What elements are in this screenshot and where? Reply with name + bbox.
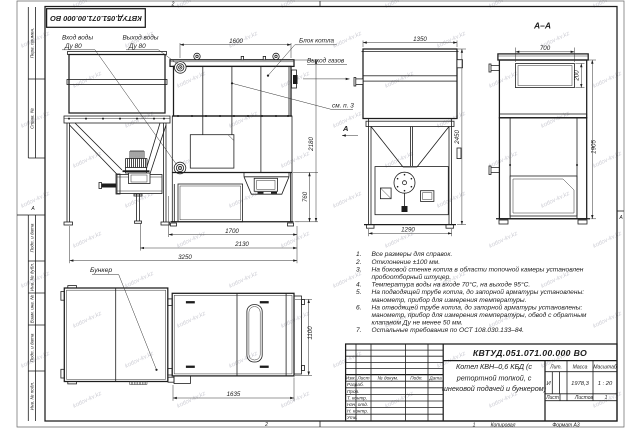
svg-text:Все размеры для справок.: Все размеры для справок. bbox=[372, 250, 453, 258]
svg-text:Выход газов: Выход газов bbox=[307, 57, 345, 65]
svg-text:Ду 80: Ду 80 bbox=[64, 43, 82, 50]
svg-text:Блок котла: Блок котла bbox=[299, 38, 334, 45]
svg-text:Лист: Лист bbox=[545, 395, 559, 401]
svg-text:1290: 1290 bbox=[401, 227, 415, 234]
svg-text:Нач. отд.: Нач. отд. bbox=[347, 402, 368, 407]
svg-text:Подп. и дата: Подп. и дата bbox=[30, 333, 35, 362]
svg-text:Ду 80: Ду 80 bbox=[128, 43, 146, 50]
svg-text:Лист: Лист bbox=[356, 376, 369, 381]
svg-text:2: 2 bbox=[264, 422, 268, 428]
svg-text:2130: 2130 bbox=[234, 241, 249, 248]
svg-text:На подводящей трубе котла, до: На подводящей трубе котла, до запорной а… bbox=[372, 288, 585, 296]
svg-text:На отводящей трубе котла, до з: На отводящей трубе котла, до запорной ар… bbox=[372, 304, 583, 312]
svg-text:Перв. примен.: Перв. примен. bbox=[30, 28, 35, 59]
svg-text:Взам. инв. №: Взам. инв. № bbox=[30, 295, 35, 323]
svg-text:1100: 1100 bbox=[307, 326, 314, 340]
svg-text:Вход воды: Вход воды bbox=[62, 34, 93, 42]
svg-text:1978,3: 1978,3 bbox=[571, 381, 590, 387]
svg-text:3250: 3250 bbox=[178, 254, 192, 261]
svg-text:манометр, прибор для измерения: манометр, прибор для измерения температу… bbox=[372, 296, 527, 304]
svg-text:манометр, прибор для измерения: манометр, прибор для измерения температу… bbox=[372, 311, 587, 319]
svg-text:Изм.: Изм. bbox=[346, 376, 356, 381]
svg-text:Масса: Масса bbox=[573, 365, 588, 371]
svg-text:№ докум.: № докум. bbox=[378, 376, 399, 381]
svg-text:2180: 2180 bbox=[308, 137, 315, 152]
svg-text:5.: 5. bbox=[356, 289, 362, 296]
svg-text:см. п. 3: см. п. 3 bbox=[332, 103, 354, 110]
svg-text:Остальные требования по ОСТ 10: Остальные требования по ОСТ 108.030.133–… bbox=[372, 326, 525, 334]
svg-text:7.: 7. bbox=[356, 327, 362, 334]
svg-text:Н. контр.: Н. контр. bbox=[347, 409, 368, 414]
svg-text:1600: 1600 bbox=[229, 38, 243, 45]
svg-text:клапаном Ду не менее 50 мм.: клапаном Ду не менее 50 мм. bbox=[372, 319, 464, 326]
svg-text:пробоотборный штуцер.: пробоотборный штуцер. bbox=[372, 273, 452, 281]
svg-text:Дата: Дата bbox=[428, 376, 442, 381]
svg-text:2.: 2. bbox=[355, 259, 362, 266]
svg-text:Т. контр.: Т. контр. bbox=[347, 395, 367, 400]
svg-text:2450: 2450 bbox=[454, 130, 461, 145]
svg-text:Подп. и дата: Подп. и дата bbox=[30, 223, 35, 252]
svg-text:КВТУД.051.071.00.000 ВО: КВТУД.051.071.00.000 ВО bbox=[50, 14, 142, 23]
svg-text:4.: 4. bbox=[356, 282, 362, 289]
svg-text:Котел КВН–0,6 КБД (с: Котел КВН–0,6 КБД (с bbox=[456, 362, 532, 371]
svg-text:Инв. № дубл.: Инв. № дубл. bbox=[30, 263, 35, 291]
svg-text:1350: 1350 bbox=[413, 36, 427, 43]
svg-text:Бункер: Бункер bbox=[90, 267, 112, 274]
svg-text:760: 760 bbox=[302, 191, 309, 202]
svg-text:1.: 1. bbox=[356, 251, 362, 258]
svg-text:ретортной топкой, с: ретортной топкой, с bbox=[456, 373, 532, 382]
svg-text:1635: 1635 bbox=[227, 391, 241, 398]
svg-text:Лит.: Лит. bbox=[549, 365, 562, 371]
svg-text:700: 700 bbox=[540, 45, 551, 52]
svg-text:шнековой подачей и бункером): шнековой подачей и бункером) bbox=[442, 384, 546, 393]
svg-text:А: А bbox=[618, 215, 623, 221]
svg-text:На боковой стенке котла в обла: На боковой стенке котла в области топочн… bbox=[372, 266, 584, 274]
svg-text:А: А bbox=[342, 124, 348, 133]
svg-text:1700: 1700 bbox=[225, 228, 239, 235]
svg-text:Температура воды на входе 70°С: Температура воды на входе 70°С, на выход… bbox=[372, 281, 531, 289]
svg-text:1: 1 bbox=[605, 395, 608, 401]
svg-text:Подп.: Подп. bbox=[410, 376, 422, 381]
svg-text:Инв. № подл.: Инв. № подл. bbox=[30, 382, 35, 411]
svg-text:Масштаб: Масштаб bbox=[593, 365, 617, 371]
svg-text:КВТУД.051.071.00.000 ВО: КВТУД.051.071.00.000 ВО bbox=[473, 348, 587, 358]
svg-text:А: А bbox=[30, 206, 35, 212]
svg-text:Формат А3: Формат А3 bbox=[552, 422, 580, 428]
svg-text:3.: 3. bbox=[356, 267, 362, 274]
svg-text:Утв.: Утв. bbox=[347, 415, 358, 420]
svg-text:1905: 1905 bbox=[591, 140, 598, 154]
svg-text:Выход воды: Выход воды bbox=[123, 34, 159, 42]
svg-text:1: 1 bbox=[473, 422, 476, 428]
svg-text:Справ. №: Справ. № bbox=[30, 108, 35, 129]
svg-text:6.: 6. bbox=[356, 305, 362, 312]
svg-text:Пров.: Пров. bbox=[347, 389, 359, 394]
svg-text:Разраб.: Разраб. bbox=[347, 382, 364, 387]
svg-text:Листов: Листов bbox=[574, 395, 594, 401]
svg-text:200: 200 bbox=[574, 70, 581, 82]
svg-text:Отклонение ±100 мм.: Отклонение ±100 мм. bbox=[372, 259, 441, 266]
svg-text:Копировал: Копировал bbox=[491, 422, 516, 428]
svg-text:А–А: А–А bbox=[533, 21, 551, 31]
svg-text:1 : 20: 1 : 20 bbox=[598, 381, 613, 387]
svg-text:2: 2 bbox=[171, 1, 175, 7]
